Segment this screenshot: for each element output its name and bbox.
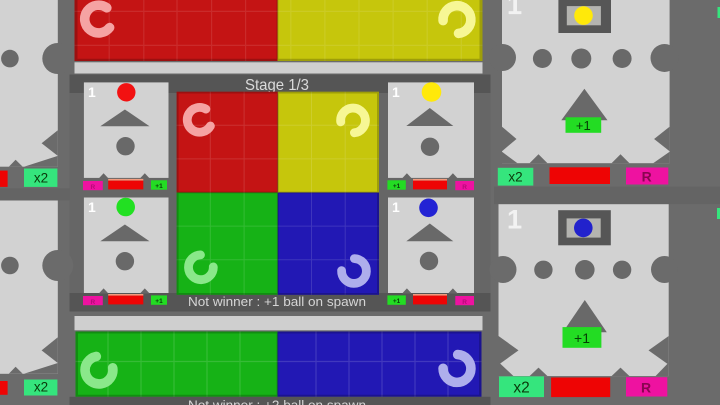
svg-text:+1: +1 [155,298,163,305]
svg-text:+1: +1 [576,118,591,133]
svg-text:+1: +1 [574,330,590,346]
svg-text:R: R [462,299,467,306]
svg-text:+1: +1 [393,183,401,190]
svg-text:Stage 1/3: Stage 1/3 [245,77,309,94]
svg-text:x2: x2 [508,170,522,185]
svg-text:1: 1 [507,0,522,20]
svg-text:1: 1 [392,84,400,100]
svg-text:x2: x2 [34,380,48,395]
svg-text:R: R [91,299,96,306]
svg-text:Not winner : +2 ball on spawn: Not winner : +2 ball on spawn [188,399,366,405]
svg-text:Not winner : +1 ball on spawn: Not winner : +1 ball on spawn [188,295,366,309]
svg-text:1: 1 [392,199,400,215]
svg-text:1: 1 [507,204,522,234]
svg-text:+1: +1 [393,298,401,305]
svg-text:x2: x2 [34,171,48,186]
svg-text:R: R [462,184,467,191]
svg-text:R: R [91,184,96,191]
svg-text:+1: +1 [155,183,163,190]
svg-text:1: 1 [88,199,96,215]
svg-text:1: 1 [88,84,96,100]
svg-text:R: R [641,379,651,395]
svg-text:x2: x2 [513,379,529,396]
svg-text:R: R [642,168,652,184]
